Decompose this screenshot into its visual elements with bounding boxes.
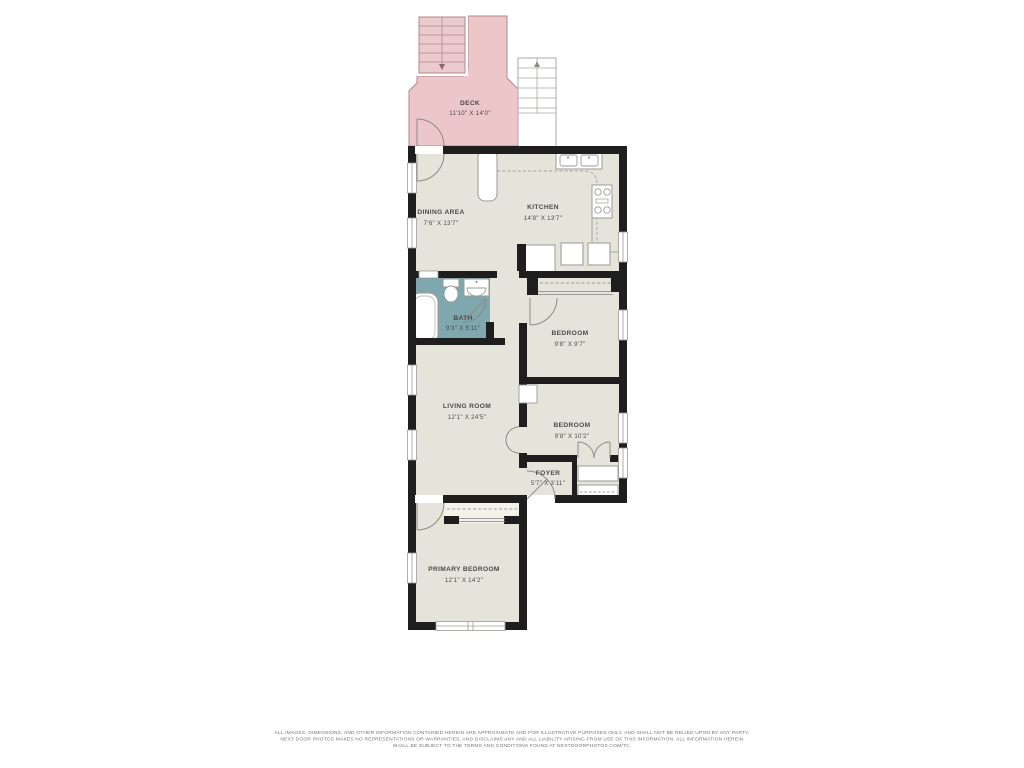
room-dims-bedroom1: 9'8" X 9'7" [555,341,586,348]
window [408,430,417,460]
exterior-stairs-up [518,58,556,147]
wall-foyer-closet-divider [572,455,577,503]
window [408,553,417,583]
floor-plan-page: DECK 11'10" X 14'0" DINING AREA 7'6" X 1… [0,0,1024,768]
kitchen-island [561,243,583,265]
room-label-foyer: FOYER [536,470,560,477]
wall-closet-block-left [527,278,538,295]
window [619,232,628,262]
kitchen-peninsula [478,150,497,201]
room-dims-kitchen: 14'8" X 13'7" [524,215,562,222]
window [619,413,628,443]
wall-foyer-top-left [519,455,577,462]
door-gap [415,146,443,154]
kitchen-island [588,243,610,265]
window [619,448,628,478]
door-gap [527,495,555,503]
deck-area [409,14,518,146]
kitchen-sink-icon [556,152,602,169]
floor-plan-drawing: DECK 11'10" X 14'0" DINING AREA 7'6" X 1… [0,0,1024,768]
room-label-bedroom1: BEDROOM [552,330,589,337]
room-dims-foyer: 5'7" X 3'11" [531,480,565,487]
room-dims-primary: 12'1" X 14'2" [445,577,483,584]
disclaimer: ALL IMAGES, DIMENSIONS, AND OTHER INFORM… [275,730,750,749]
wall-kitchen-stub [517,244,526,271]
room-label-bath: BATH [453,315,472,322]
window [408,365,417,395]
room-dims-deck: 11'10" X 14'0" [449,110,491,117]
disclaimer-line-3: SHALL BE SUBJECT TO THE TERMS AND CONDIT… [393,743,632,749]
wall-bedrooms-top [519,271,627,278]
window [619,310,628,340]
window-wide [436,622,505,631]
room-label-deck: DECK [460,100,480,107]
wall-right-lower [519,495,527,630]
room-label-dining: DINING AREA [417,209,464,216]
deck-stairs-down [416,14,468,76]
kitchen-cabinet [524,245,555,272]
room-label-bedroom2: BEDROOM [554,422,591,429]
room-label-kitchen: KITCHEN [527,204,559,211]
room-label-primary: PRIMARY BEDROOM [428,566,500,573]
room-label-living: LIVING ROOM [443,403,491,410]
wall-hall-vertical-b [519,403,527,427]
wall-hall-vertical-a [519,323,527,385]
room-dims-bath: 9'3" X 5'11" [446,325,480,332]
window [408,163,417,193]
window [408,218,417,248]
wall-bedroom-divider [527,377,627,384]
bath-niche [419,271,438,278]
disclaimer-line-1: ALL IMAGES, DIMENSIONS, AND OTHER INFORM… [275,730,750,736]
primary-closet [444,503,519,524]
stove-icon [592,185,612,218]
hall-niche [519,385,537,403]
toilet-icon [443,279,459,302]
wall-bath-door-stub [486,322,494,345]
room-dims-bedroom2: 9'8" X 10'2" [555,433,590,440]
bathroom-sink-icon [464,279,489,296]
disclaimer-line-2: NEXT DOOR PHOTOS MAKES NO REPRESENTATION… [280,737,743,743]
door-gap [415,495,443,503]
room-dims-dining: 7'6" X 13'7" [424,220,459,227]
wall-closet-block-right [611,278,619,292]
room-dims-living: 12'1" X 24'5" [448,414,486,421]
